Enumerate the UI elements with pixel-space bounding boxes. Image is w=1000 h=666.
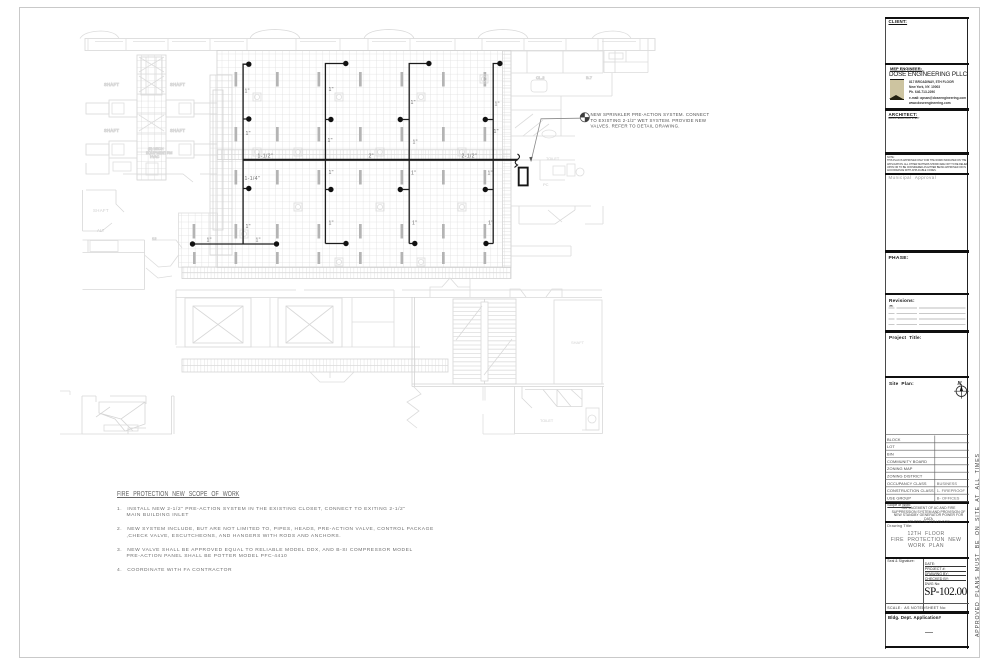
svg-text:1": 1" <box>329 87 334 93</box>
svg-text:ZONING DISTRICT: ZONING DISTRICT <box>887 473 923 478</box>
svg-text:USE GROUP: USE GROUP <box>887 495 911 500</box>
svg-text:1": 1" <box>413 140 418 146</box>
svg-text:LOT: LOT <box>887 444 895 449</box>
svg-text:HVAC: HVAC <box>150 155 160 159</box>
svg-text:TOILET: TOILET <box>540 419 554 423</box>
svg-text:TOILET: TOILET <box>546 157 560 161</box>
svg-text:SHAFT: SHAFT <box>170 82 185 87</box>
svg-text:SHAFT: SHAFT <box>104 128 119 133</box>
svg-text:1": 1" <box>494 129 499 135</box>
svg-text:VALVES. REFER TO DETAIL DRAWIN: VALVES. REFER TO DETAIL DRAWING. <box>591 123 680 128</box>
svg-text:1": 1" <box>245 89 250 95</box>
svg-text:SHAFT: SHAFT <box>170 128 185 133</box>
svg-text:1": 1" <box>256 238 261 244</box>
svg-text:1": 1" <box>488 171 493 177</box>
svg-text:1-1/4": 1-1/4" <box>245 176 260 182</box>
svg-text:ALT: ALT <box>97 228 105 233</box>
svg-text:BIN: BIN <box>887 451 894 456</box>
svg-text:SHAFT: SHAFT <box>93 208 109 213</box>
svg-text:OCCUPANCY CLASS: OCCUPANCY CLASS <box>887 480 927 485</box>
svg-text:TO EXISTING 2-1/2" WET SYSTEM.: TO EXISTING 2-1/2" WET SYSTEM. PROVIDE N… <box>591 118 707 123</box>
svg-text:1-1/2": 1-1/2" <box>258 153 273 159</box>
svg-text:1": 1" <box>411 100 416 106</box>
svg-text:1": 1" <box>328 138 333 144</box>
svg-text:1- FIREPROOF: 1- FIREPROOF <box>936 488 965 493</box>
svg-text:1": 1" <box>246 131 251 137</box>
svg-text:B.7: B.7 <box>586 75 593 80</box>
svg-text:1": 1" <box>411 171 416 177</box>
svg-text:1": 1" <box>246 224 251 230</box>
svg-text:1": 1" <box>488 221 493 227</box>
svg-text:SHAFT: SHAFT <box>571 340 585 345</box>
svg-text:COMMUNITY BOARD: COMMUNITY BOARD <box>887 458 927 463</box>
svg-text:1": 1" <box>412 221 417 227</box>
svg-text:12: 12 <box>152 236 157 241</box>
svg-text:CL.2: CL.2 <box>536 75 545 80</box>
svg-text:SHAFT: SHAFT <box>104 82 119 87</box>
svg-text:BUSINESS: BUSINESS <box>936 480 957 485</box>
svg-text:NEW SPRINKLER PRE-ACTION SYSTE: NEW SPRINKLER PRE-ACTION SYSTEM. CONNECT <box>591 112 710 117</box>
svg-text:1": 1" <box>329 221 334 227</box>
svg-text:PC: PC <box>543 182 549 187</box>
svg-text:1": 1" <box>207 238 212 244</box>
svg-text:1": 1" <box>495 102 500 108</box>
svg-text:B- OFFICES: B- OFFICES <box>936 495 959 500</box>
svg-text:2-1/2": 2-1/2" <box>462 153 477 159</box>
svg-text:BLOCK: BLOCK <box>887 436 901 441</box>
svg-text:CONSTRUCTION CLASS: CONSTRUCTION CLASS <box>887 488 934 493</box>
svg-text:ZONING MAP: ZONING MAP <box>887 466 913 471</box>
svg-text:2": 2" <box>369 153 374 159</box>
svg-text:1": 1" <box>329 170 334 176</box>
